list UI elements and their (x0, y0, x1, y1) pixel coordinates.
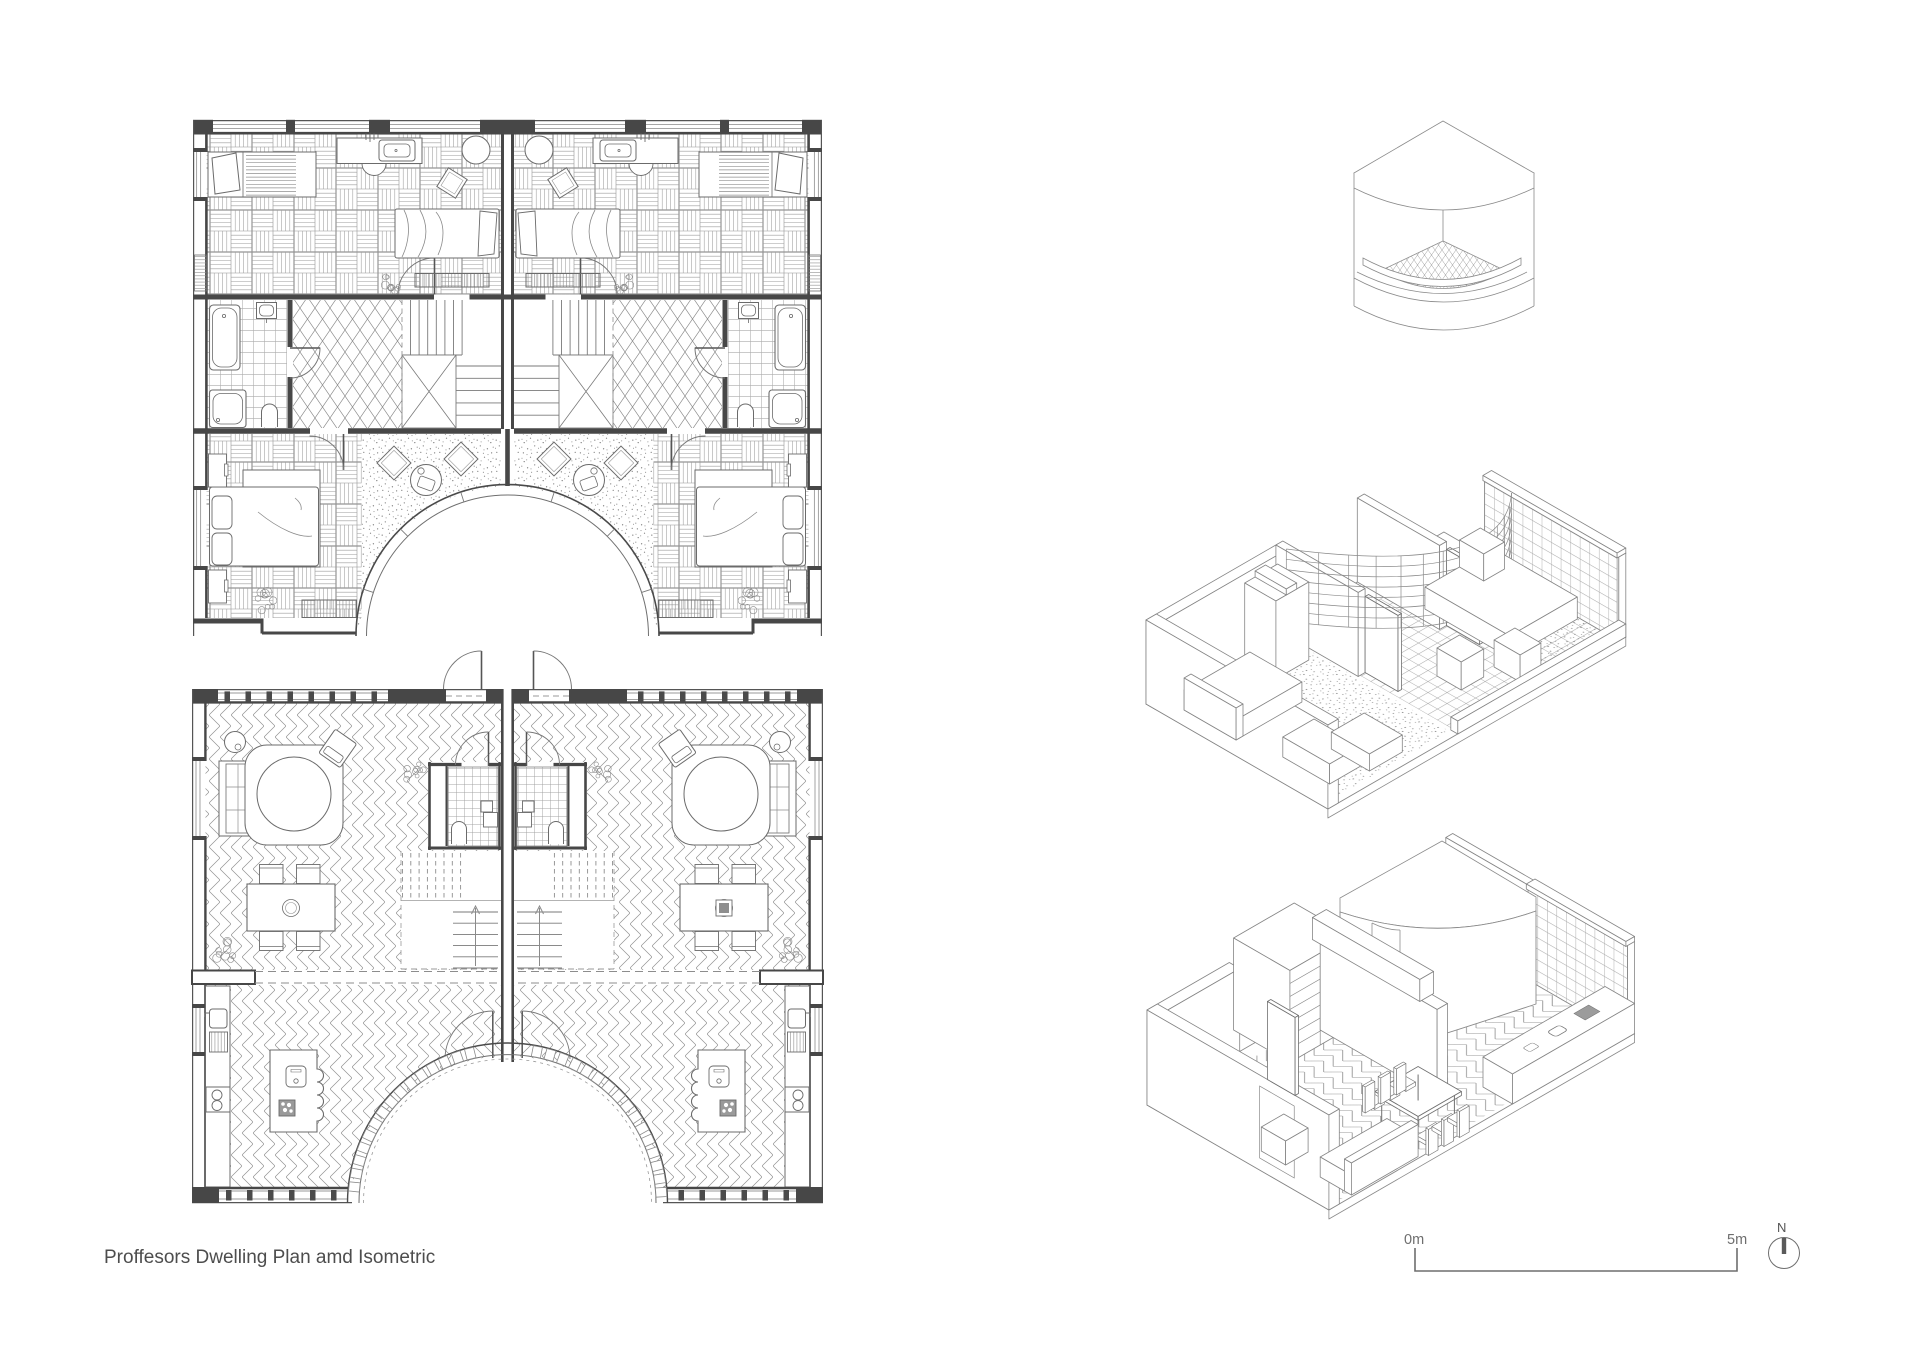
svg-text:Proffesors Dwelling Plan amd I: Proffesors Dwelling Plan amd Isometric (104, 1247, 435, 1268)
svg-text:5m: 5m (1727, 1232, 1747, 1248)
svg-text:0m: 0m (1404, 1232, 1424, 1248)
svg-text:N: N (1777, 1220, 1786, 1235)
